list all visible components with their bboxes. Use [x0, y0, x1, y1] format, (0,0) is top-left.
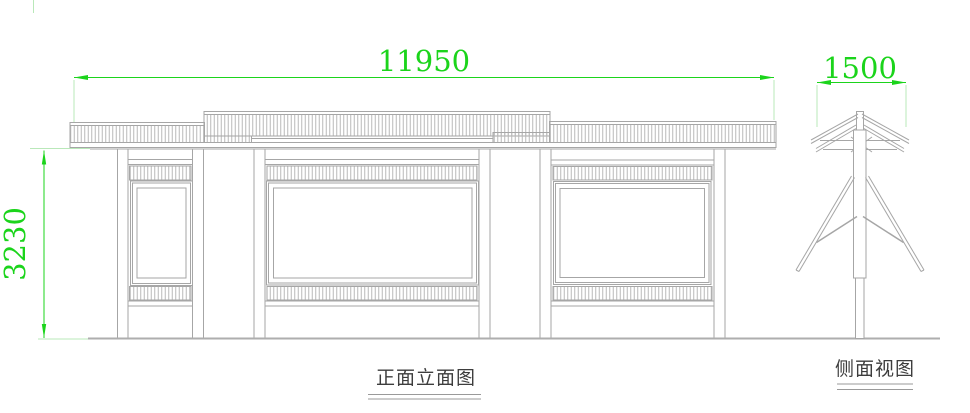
dimension-front-height: 3230: [0, 149, 90, 340]
pole-upper: [854, 130, 867, 278]
panel-outer-frame-inner-line: [556, 184, 710, 283]
panel-outer-frame-inner-line: [133, 183, 191, 284]
panel-bottom-rail: [265, 301, 479, 306]
roof-band-left-hatch: [70, 126, 205, 143]
roof-substrip-right: [493, 133, 550, 143]
panel-outer-frame-inner-line: [269, 183, 477, 283]
panel-bottom-hatch: [130, 287, 192, 301]
column-2: [193, 149, 204, 339]
dimension-front-width: 11950: [74, 44, 774, 122]
panel-outer-frame: [267, 181, 479, 285]
column-4: [479, 149, 490, 339]
panel-top-hatch: [553, 167, 712, 181]
panel-display-window: [560, 189, 705, 278]
view-titles: 正面立面图 侧面视图: [368, 358, 915, 399]
display-panel-center: [265, 160, 479, 307]
panel-display-window: [137, 188, 186, 278]
front-height-value: 3230: [0, 207, 32, 281]
column-3: [254, 149, 265, 339]
display-panel-right: [551, 160, 714, 306]
panel-display-window: [274, 188, 473, 278]
cad-drawing-page: 11950 3230 1500 正面立面图 侧面视图: [0, 0, 970, 413]
panel-top-rail: [551, 160, 714, 165]
panel-outer-frame: [554, 182, 712, 285]
panel-outer-frame: [131, 181, 193, 286]
roof-assembly: [70, 112, 776, 150]
display-panel-narrow: [128, 160, 193, 307]
column-1: [118, 149, 129, 339]
panel-top-hatch: [130, 166, 192, 180]
side-view-title: 侧面视图: [835, 358, 915, 380]
column-5: [540, 149, 551, 339]
panel-top-hatch: [267, 166, 477, 180]
roof-substrip-left: [204, 136, 252, 143]
column-6: [714, 149, 725, 339]
cad-drawing-canvas: 11950 3230 1500 正面立面图 侧面视图: [0, 0, 970, 413]
front-width-value: 11950: [378, 44, 470, 78]
pole-lower: [856, 278, 865, 339]
panel-bottom-hatch: [553, 287, 712, 301]
side-width-value: 1500: [823, 51, 897, 85]
panel-bottom-rail: [551, 301, 714, 306]
side-view-drawing: [796, 112, 924, 339]
panel-top-rail: [128, 160, 193, 165]
panel-top-rail: [265, 160, 479, 165]
panel-bottom-hatch: [267, 287, 477, 301]
roof-band-right-hatch: [550, 125, 777, 143]
front-elevation-title: 正面立面图: [376, 367, 476, 389]
panel-bottom-rail: [128, 301, 193, 306]
roof-fascia: [70, 143, 776, 148]
front-elevation-view: [70, 112, 940, 339]
